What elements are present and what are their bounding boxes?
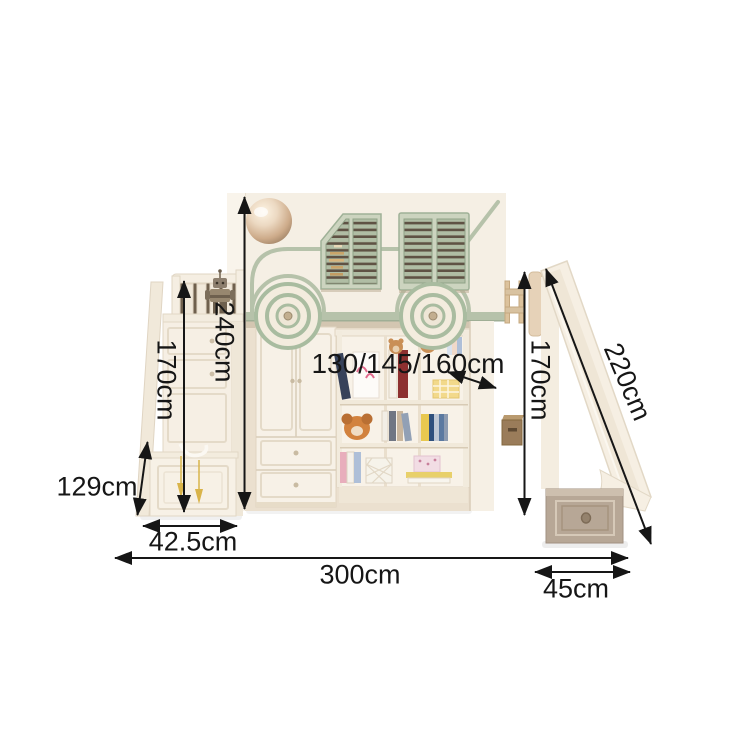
- slide-entry-gate: [505, 281, 524, 323]
- wooden-step: [502, 415, 524, 445]
- dim-label-staircase-depth: 42.5cm: [149, 529, 238, 556]
- dim-label-slide-width: 45cm: [543, 576, 609, 603]
- ball-lamp: [246, 198, 292, 244]
- dim-label-slide-platform-height: 170cm: [527, 339, 554, 420]
- shutter-window-right: [399, 213, 469, 293]
- dim-label-overall-width: 300cm: [319, 562, 400, 589]
- slide-drawer-box: [546, 489, 623, 543]
- dim-label-staircase-height: 170cm: [153, 339, 180, 420]
- dim-label-staircase-side-height: 129cm: [56, 474, 137, 501]
- bus-wheel-left: [256, 284, 320, 348]
- product-dimension-diagram: 240cm 170cm 129cm 42.5cm 300cm 45cm 170c…: [0, 0, 750, 750]
- dim-label-mattress-options: 130/145/160cm: [311, 350, 504, 378]
- slide-entry-post: [529, 272, 542, 336]
- dim-label-overall-height: 240cm: [211, 301, 238, 382]
- bus-wheel-right: [401, 284, 465, 348]
- stairs-bottom-step: [148, 452, 238, 516]
